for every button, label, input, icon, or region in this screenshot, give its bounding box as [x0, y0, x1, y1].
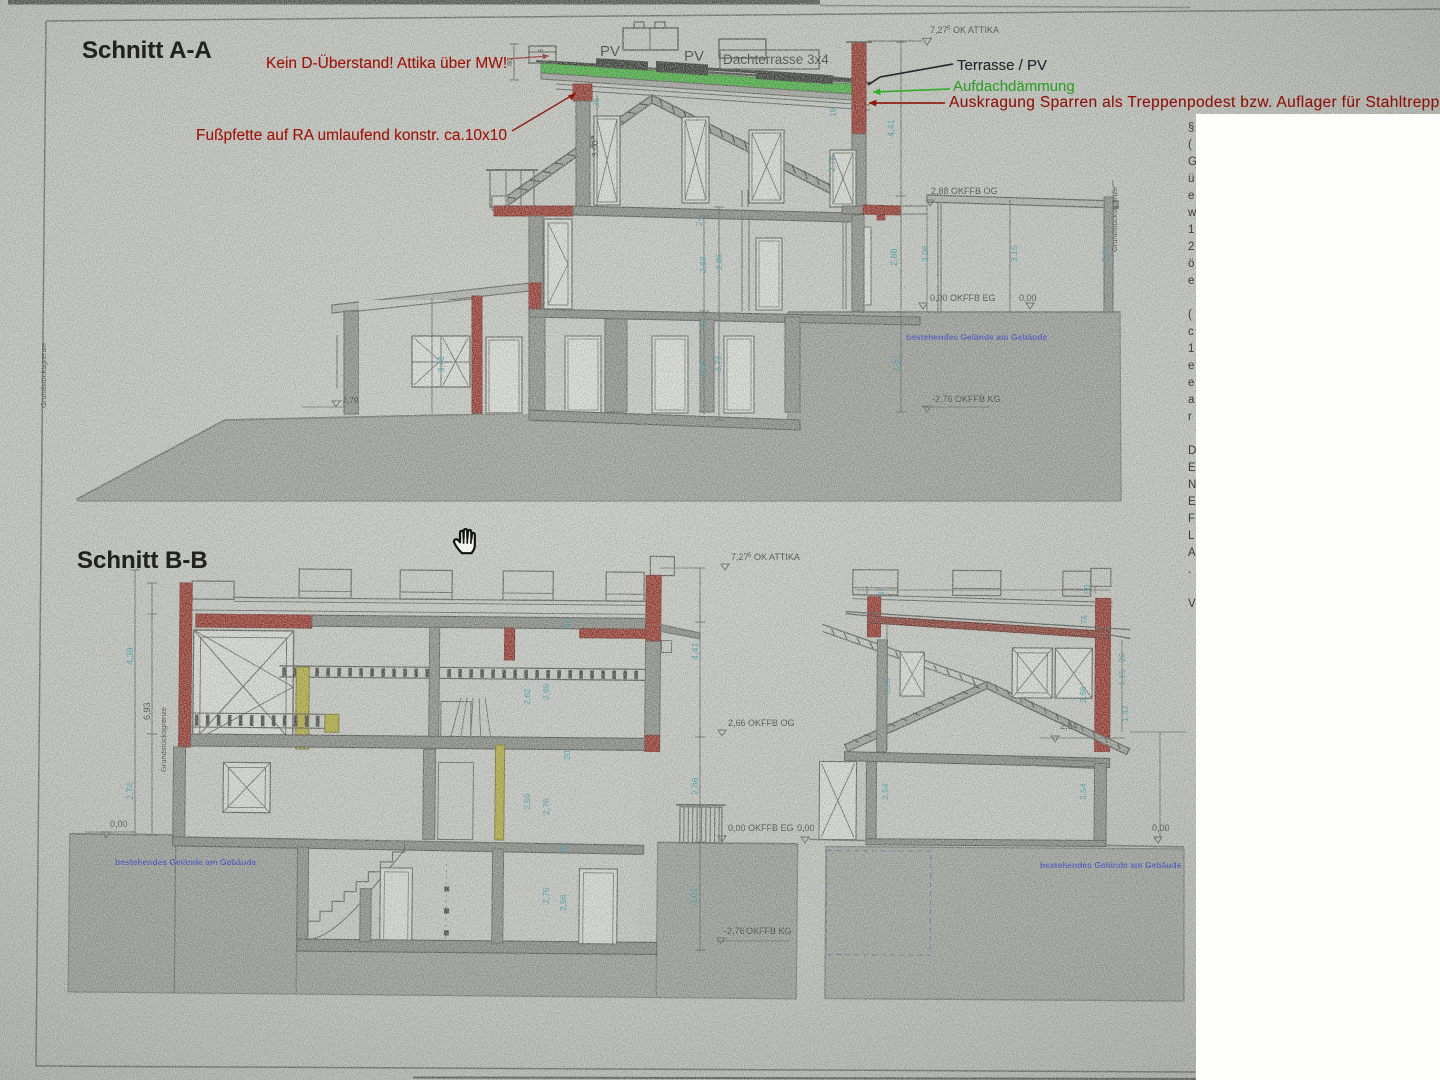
svg-text:w: w: [1187, 207, 1197, 219]
svg-text:2: 2: [1188, 241, 1194, 253]
svg-text:Kein D-Überstand! Attika über: Kein D-Überstand! Attika über MW!: [266, 54, 507, 72]
svg-text:L: L: [1188, 530, 1195, 542]
svg-text:Fußpfette auf RA umlaufend kon: Fußpfette auf RA umlaufend konstr. ca.10…: [196, 127, 507, 144]
svg-text:e: e: [1188, 275, 1194, 287]
svg-text:(: (: [1188, 139, 1192, 151]
svg-text:e: e: [1188, 377, 1194, 389]
svg-text:ö: ö: [1188, 258, 1194, 270]
svg-text:Schnitt A-A: Schnitt A-A: [82, 37, 212, 64]
svg-text:(: (: [1188, 309, 1192, 321]
svg-text:D: D: [1188, 445, 1196, 457]
svg-text:e: e: [1188, 190, 1194, 202]
svg-text:e: e: [1188, 360, 1194, 372]
svg-text:c: c: [1188, 326, 1194, 338]
svg-text:a: a: [1188, 394, 1195, 406]
svg-text:A: A: [1188, 547, 1196, 559]
svg-text:Auskragung Sparren als Treppen: Auskragung Sparren als Treppenpodest bzw…: [949, 94, 1440, 111]
svg-text:E: E: [1188, 462, 1196, 474]
svg-text:F: F: [1188, 513, 1195, 525]
svg-text:Schnitt B-B: Schnitt B-B: [77, 547, 208, 574]
svg-text:ü: ü: [1188, 173, 1194, 185]
svg-text:N: N: [1188, 479, 1196, 491]
svg-text:G: G: [1188, 156, 1197, 168]
svg-text:§: §: [1188, 122, 1194, 134]
svg-text:r: r: [1188, 411, 1192, 423]
svg-text:1: 1: [1188, 343, 1194, 355]
svg-text:Aufdachdämmung: Aufdachdämmung: [953, 78, 1075, 95]
svg-text:V: V: [1188, 598, 1196, 610]
svg-text:Terrasse / PV: Terrasse / PV: [957, 57, 1047, 74]
svg-text:E: E: [1188, 496, 1196, 508]
svg-text:.: .: [1188, 564, 1191, 576]
svg-text:1: 1: [1188, 224, 1194, 236]
